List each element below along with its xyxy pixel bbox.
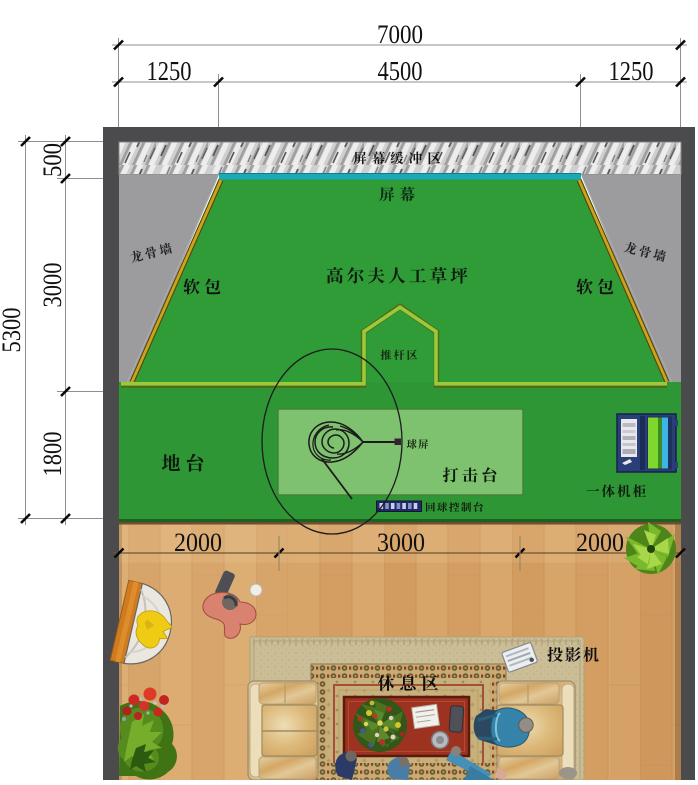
svg-text:1250: 1250 bbox=[147, 56, 192, 86]
svg-text:3000: 3000 bbox=[38, 263, 67, 308]
svg-text:500: 500 bbox=[38, 143, 67, 177]
svg-text:7000: 7000 bbox=[377, 20, 423, 49]
svg-text:4500: 4500 bbox=[378, 56, 423, 86]
svg-text:3000: 3000 bbox=[377, 528, 425, 557]
svg-text:2000: 2000 bbox=[576, 528, 624, 557]
svg-text:2000: 2000 bbox=[174, 528, 222, 557]
svg-text:5300: 5300 bbox=[0, 308, 26, 353]
svg-text:1800: 1800 bbox=[38, 432, 67, 477]
svg-text:1250: 1250 bbox=[609, 56, 654, 86]
